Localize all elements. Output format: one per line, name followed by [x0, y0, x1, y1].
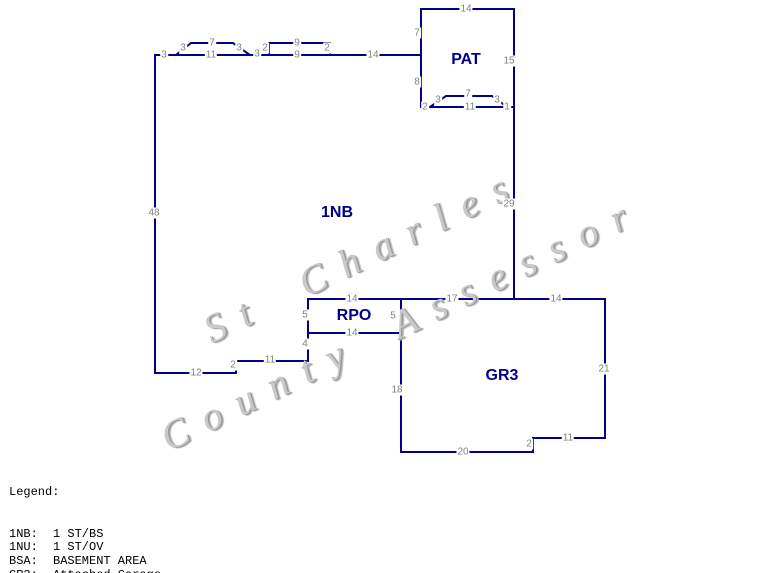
legend-entry-code: BSA: [9, 555, 53, 569]
legend-entry-code: 1NU: [9, 541, 53, 555]
legend-entry-description: 1 ST/BS [53, 527, 103, 541]
area-label-pat: PAT [451, 52, 481, 68]
legend-entry: 1NU:1 ST/OV [9, 541, 175, 555]
legend-entry-code: GR3: [9, 569, 53, 573]
legend-entry: 1NB:1 ST/BS [9, 528, 175, 542]
legend-entry: GR3:Attached Garage [9, 569, 175, 573]
legend-entry: BSA:BASEMENT AREA [9, 555, 175, 569]
area-label-gr3: GR3 [486, 368, 519, 384]
legend-entry-code: 1NB: [9, 528, 53, 542]
legend-entry-description: Attached Garage [53, 568, 161, 573]
legend-entry-description: 1 ST/OV [53, 540, 103, 554]
legend-title: Legend: [9, 486, 175, 500]
area-label-1nb: 1NB [321, 205, 353, 221]
legend-entry-description: BASEMENT AREA [53, 554, 147, 568]
sketch-canvas: St Charles County Assessor 3371133299214… [0, 0, 762, 573]
area-label-rpo: RPO [337, 308, 372, 324]
legend: Legend: 1NB:1 ST/BS1NU:1 ST/OVBSA:BASEME… [9, 459, 175, 573]
legend-entries: 1NB:1 ST/BS1NU:1 ST/OVBSA:BASEMENT AREAG… [9, 528, 175, 573]
